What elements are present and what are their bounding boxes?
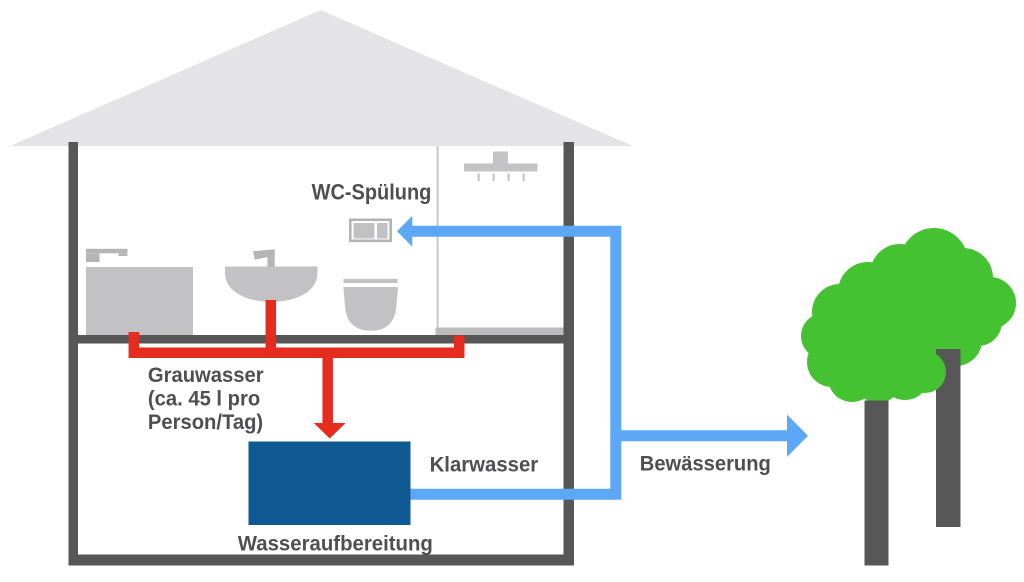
svg-text:Person/Tag): Person/Tag) bbox=[148, 410, 263, 434]
svg-text:Klarwasser: Klarwasser bbox=[430, 453, 539, 477]
svg-text:Bewässerung: Bewässerung bbox=[640, 452, 771, 476]
svg-text:Grauwasser: Grauwasser bbox=[148, 363, 264, 387]
svg-text:WC-Spülung: WC-Spülung bbox=[312, 180, 432, 205]
svg-text:Wasseraufbereitung: Wasseraufbereitung bbox=[238, 532, 433, 556]
svg-text:(ca. 45 l pro: (ca. 45 l pro bbox=[148, 387, 260, 411]
